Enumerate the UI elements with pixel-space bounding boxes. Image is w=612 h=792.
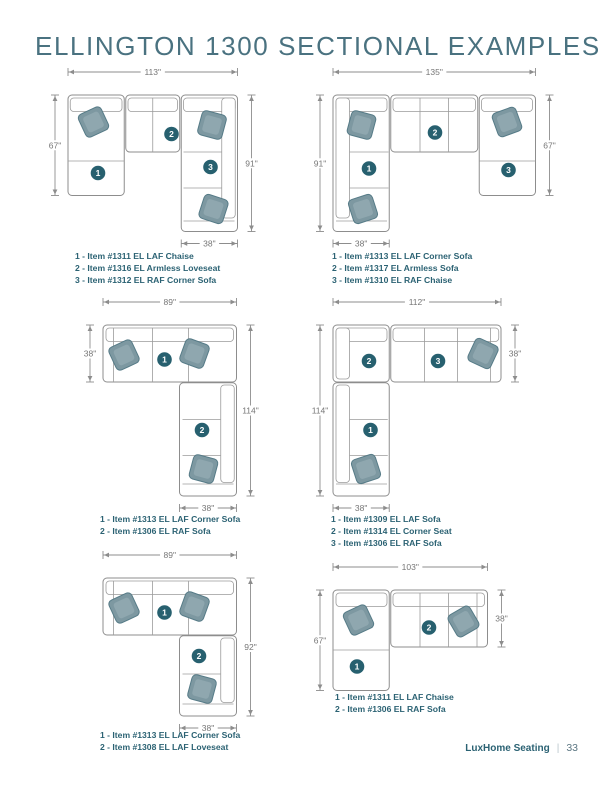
- back-cushion: [336, 385, 350, 483]
- page-title: ELLINGTON 1300 SECTIONAL EXAMPLES: [35, 31, 601, 62]
- dimension-label: 67": [49, 140, 61, 150]
- dimension-label: 92": [244, 642, 256, 652]
- back-cushion: [221, 638, 235, 703]
- position-marker-2: 2: [362, 354, 377, 369]
- dimension-label: 89": [164, 297, 176, 307]
- page-number: 33: [566, 742, 578, 754]
- svg-text:2: 2: [200, 425, 205, 435]
- dimension-left: 91": [310, 95, 329, 232]
- dimension-left: 38": [80, 325, 99, 382]
- svg-text:2: 2: [433, 128, 438, 138]
- position-marker-2: 2: [422, 620, 437, 635]
- svg-text:2: 2: [427, 623, 432, 633]
- dimension-label: 67": [314, 635, 326, 645]
- position-marker-1: 1: [157, 352, 172, 367]
- dimension-top: 112": [333, 297, 501, 307]
- item-label: 2 - Item #1308 EL LAF Loveseat: [100, 741, 240, 753]
- item-label: 2 - Item #1306 EL RAF Sofa: [335, 703, 454, 715]
- item-list-6: 1 - Item #1311 EL LAF Chaise2 - Item #13…: [335, 691, 454, 715]
- item-label: 2 - Item #1314 EL Corner Seat: [331, 525, 452, 537]
- dimension-right: 91": [242, 95, 261, 232]
- dimension-right: 38": [492, 590, 511, 647]
- position-marker-1: 1: [362, 161, 377, 176]
- back-cushion: [393, 593, 485, 607]
- back-cushion: [336, 98, 350, 218]
- svg-text:3: 3: [506, 165, 511, 175]
- dimension-right: 114": [238, 325, 262, 496]
- position-marker-2: 2: [428, 125, 443, 140]
- sectional-drawing: 113"67"91"38"123: [40, 67, 266, 260]
- dimension-label: 38": [203, 239, 215, 249]
- item-label: 3 - Item #1310 EL RAF Chaise: [332, 274, 472, 286]
- item-list-1: 1 - Item #1311 EL LAF Chaise2 - Item #13…: [75, 250, 220, 286]
- dimension-label: 103": [402, 562, 419, 572]
- item-label: 2 - Item #1316 EL Armless Loveseat: [75, 262, 220, 274]
- dimension-right: 38": [505, 325, 524, 382]
- position-marker-1: 1: [350, 659, 365, 674]
- position-marker-1: 1: [91, 166, 106, 181]
- dimension-label: 113": [144, 67, 161, 77]
- dimension-label: 91": [314, 158, 326, 168]
- item-label: 3 - Item #1312 EL RAF Corner Sofa: [75, 274, 220, 286]
- svg-text:1: 1: [355, 662, 360, 672]
- dimension-label: 112": [409, 297, 426, 307]
- dimension-right: 67": [540, 95, 559, 196]
- svg-text:1: 1: [367, 164, 372, 174]
- svg-text:1: 1: [162, 355, 167, 365]
- svg-text:2: 2: [169, 129, 174, 139]
- dimension-left: 114": [308, 325, 332, 496]
- dimension-label: 91": [245, 158, 257, 168]
- position-marker-2: 2: [195, 423, 210, 438]
- back-cushion: [221, 385, 235, 483]
- dimension-left: 67": [45, 95, 64, 196]
- item-label: 2 - Item #1306 EL RAF Sofa: [100, 525, 240, 537]
- dimension-label: 114": [242, 406, 259, 416]
- dimension-label: 38": [355, 239, 367, 249]
- dimension-label: 114": [312, 406, 329, 416]
- dimension-label: 38": [355, 503, 367, 513]
- item-label: 1 - Item #1313 EL LAF Corner Sofa: [100, 729, 240, 741]
- sectional-drawing: 89"38"114"38"12: [75, 297, 265, 524]
- footer-separator: |: [557, 743, 560, 754]
- dimension-left: 67": [310, 590, 329, 691]
- sectional-figure-2: 135"91"67"38"123: [305, 67, 564, 265]
- back-cushion: [393, 98, 476, 112]
- dimension-label: 38": [509, 349, 521, 359]
- position-marker-2: 2: [164, 127, 179, 142]
- svg-text:3: 3: [436, 356, 441, 366]
- dimension-label: 89": [164, 550, 176, 560]
- dimension-label: 135": [426, 67, 443, 77]
- dimension-bottom: 38": [181, 239, 237, 249]
- dimension-top: 103": [333, 562, 488, 572]
- dimension-bottom: 38": [333, 239, 389, 249]
- item-list-2: 1 - Item #1313 EL LAF Corner Sofa2 - Ite…: [332, 250, 472, 286]
- dimension-label: 38": [495, 614, 507, 624]
- brand-name: LuxHome Seating: [465, 743, 549, 754]
- dimension-top: 89": [103, 550, 237, 560]
- svg-text:3: 3: [208, 162, 213, 172]
- sectional-figure-3: 89"38"114"38"12: [75, 297, 265, 529]
- sectional-figure-4: 112"114"38"38"123: [305, 297, 529, 529]
- dimension-label: 38": [84, 349, 96, 359]
- dimension-label: 67": [543, 140, 555, 150]
- position-marker-2: 2: [192, 649, 207, 664]
- page-footer: LuxHome Seating | 33: [465, 742, 578, 754]
- position-marker-1: 1: [157, 605, 172, 620]
- back-cushion: [336, 328, 350, 379]
- item-label: 3 - Item #1306 EL RAF Sofa: [331, 537, 452, 549]
- sectional-drawing: 89"92"38"12: [75, 550, 265, 744]
- svg-text:1: 1: [96, 168, 101, 178]
- sectional-figure-1: 113"67"91"38"123: [40, 67, 266, 265]
- back-cushion: [106, 581, 234, 595]
- item-label: 1 - Item #1313 EL LAF Corner Sofa: [100, 513, 240, 525]
- dimension-bottom: 38": [333, 503, 389, 513]
- dimension-top: 113": [68, 67, 238, 77]
- svg-text:1: 1: [368, 425, 373, 435]
- item-list-4: 1 - Item #1309 EL LAF Sofa2 - Item #1314…: [331, 513, 452, 549]
- sectional-drawing: 112"114"38"38"123: [305, 297, 529, 524]
- item-label: 1 - Item #1313 EL LAF Corner Sofa: [332, 250, 472, 262]
- svg-text:2: 2: [197, 651, 202, 661]
- item-list-3: 1 - Item #1313 EL LAF Corner Sofa2 - Ite…: [100, 513, 240, 537]
- sectional-drawing: 135"91"67"38"123: [305, 67, 564, 260]
- position-marker-3: 3: [501, 163, 516, 178]
- dimension-top: 135": [333, 67, 536, 77]
- item-label: 2 - Item #1317 EL Armless Sofa: [332, 262, 472, 274]
- svg-text:2: 2: [367, 356, 372, 366]
- sectional-figure-5: 89"92"38"12: [75, 550, 265, 749]
- item-label: 1 - Item #1311 EL LAF Chaise: [335, 691, 454, 703]
- dimension-top: 89": [103, 297, 237, 307]
- position-marker-3: 3: [431, 354, 446, 369]
- item-label: 1 - Item #1311 EL LAF Chaise: [75, 250, 220, 262]
- position-marker-1: 1: [363, 423, 378, 438]
- dimension-right: 92": [241, 578, 260, 716]
- dimension-label: 38": [202, 503, 214, 513]
- svg-text:1: 1: [162, 608, 167, 618]
- back-cushion: [106, 328, 234, 342]
- catalog-page: ELLINGTON 1300 SECTIONAL EXAMPLES 113"67…: [0, 0, 612, 792]
- dimension-bottom: 38": [180, 503, 237, 513]
- position-marker-3: 3: [203, 160, 218, 175]
- item-label: 1 - Item #1309 EL LAF Sofa: [331, 513, 452, 525]
- item-list-5: 1 - Item #1313 EL LAF Corner Sofa2 - Ite…: [100, 729, 240, 753]
